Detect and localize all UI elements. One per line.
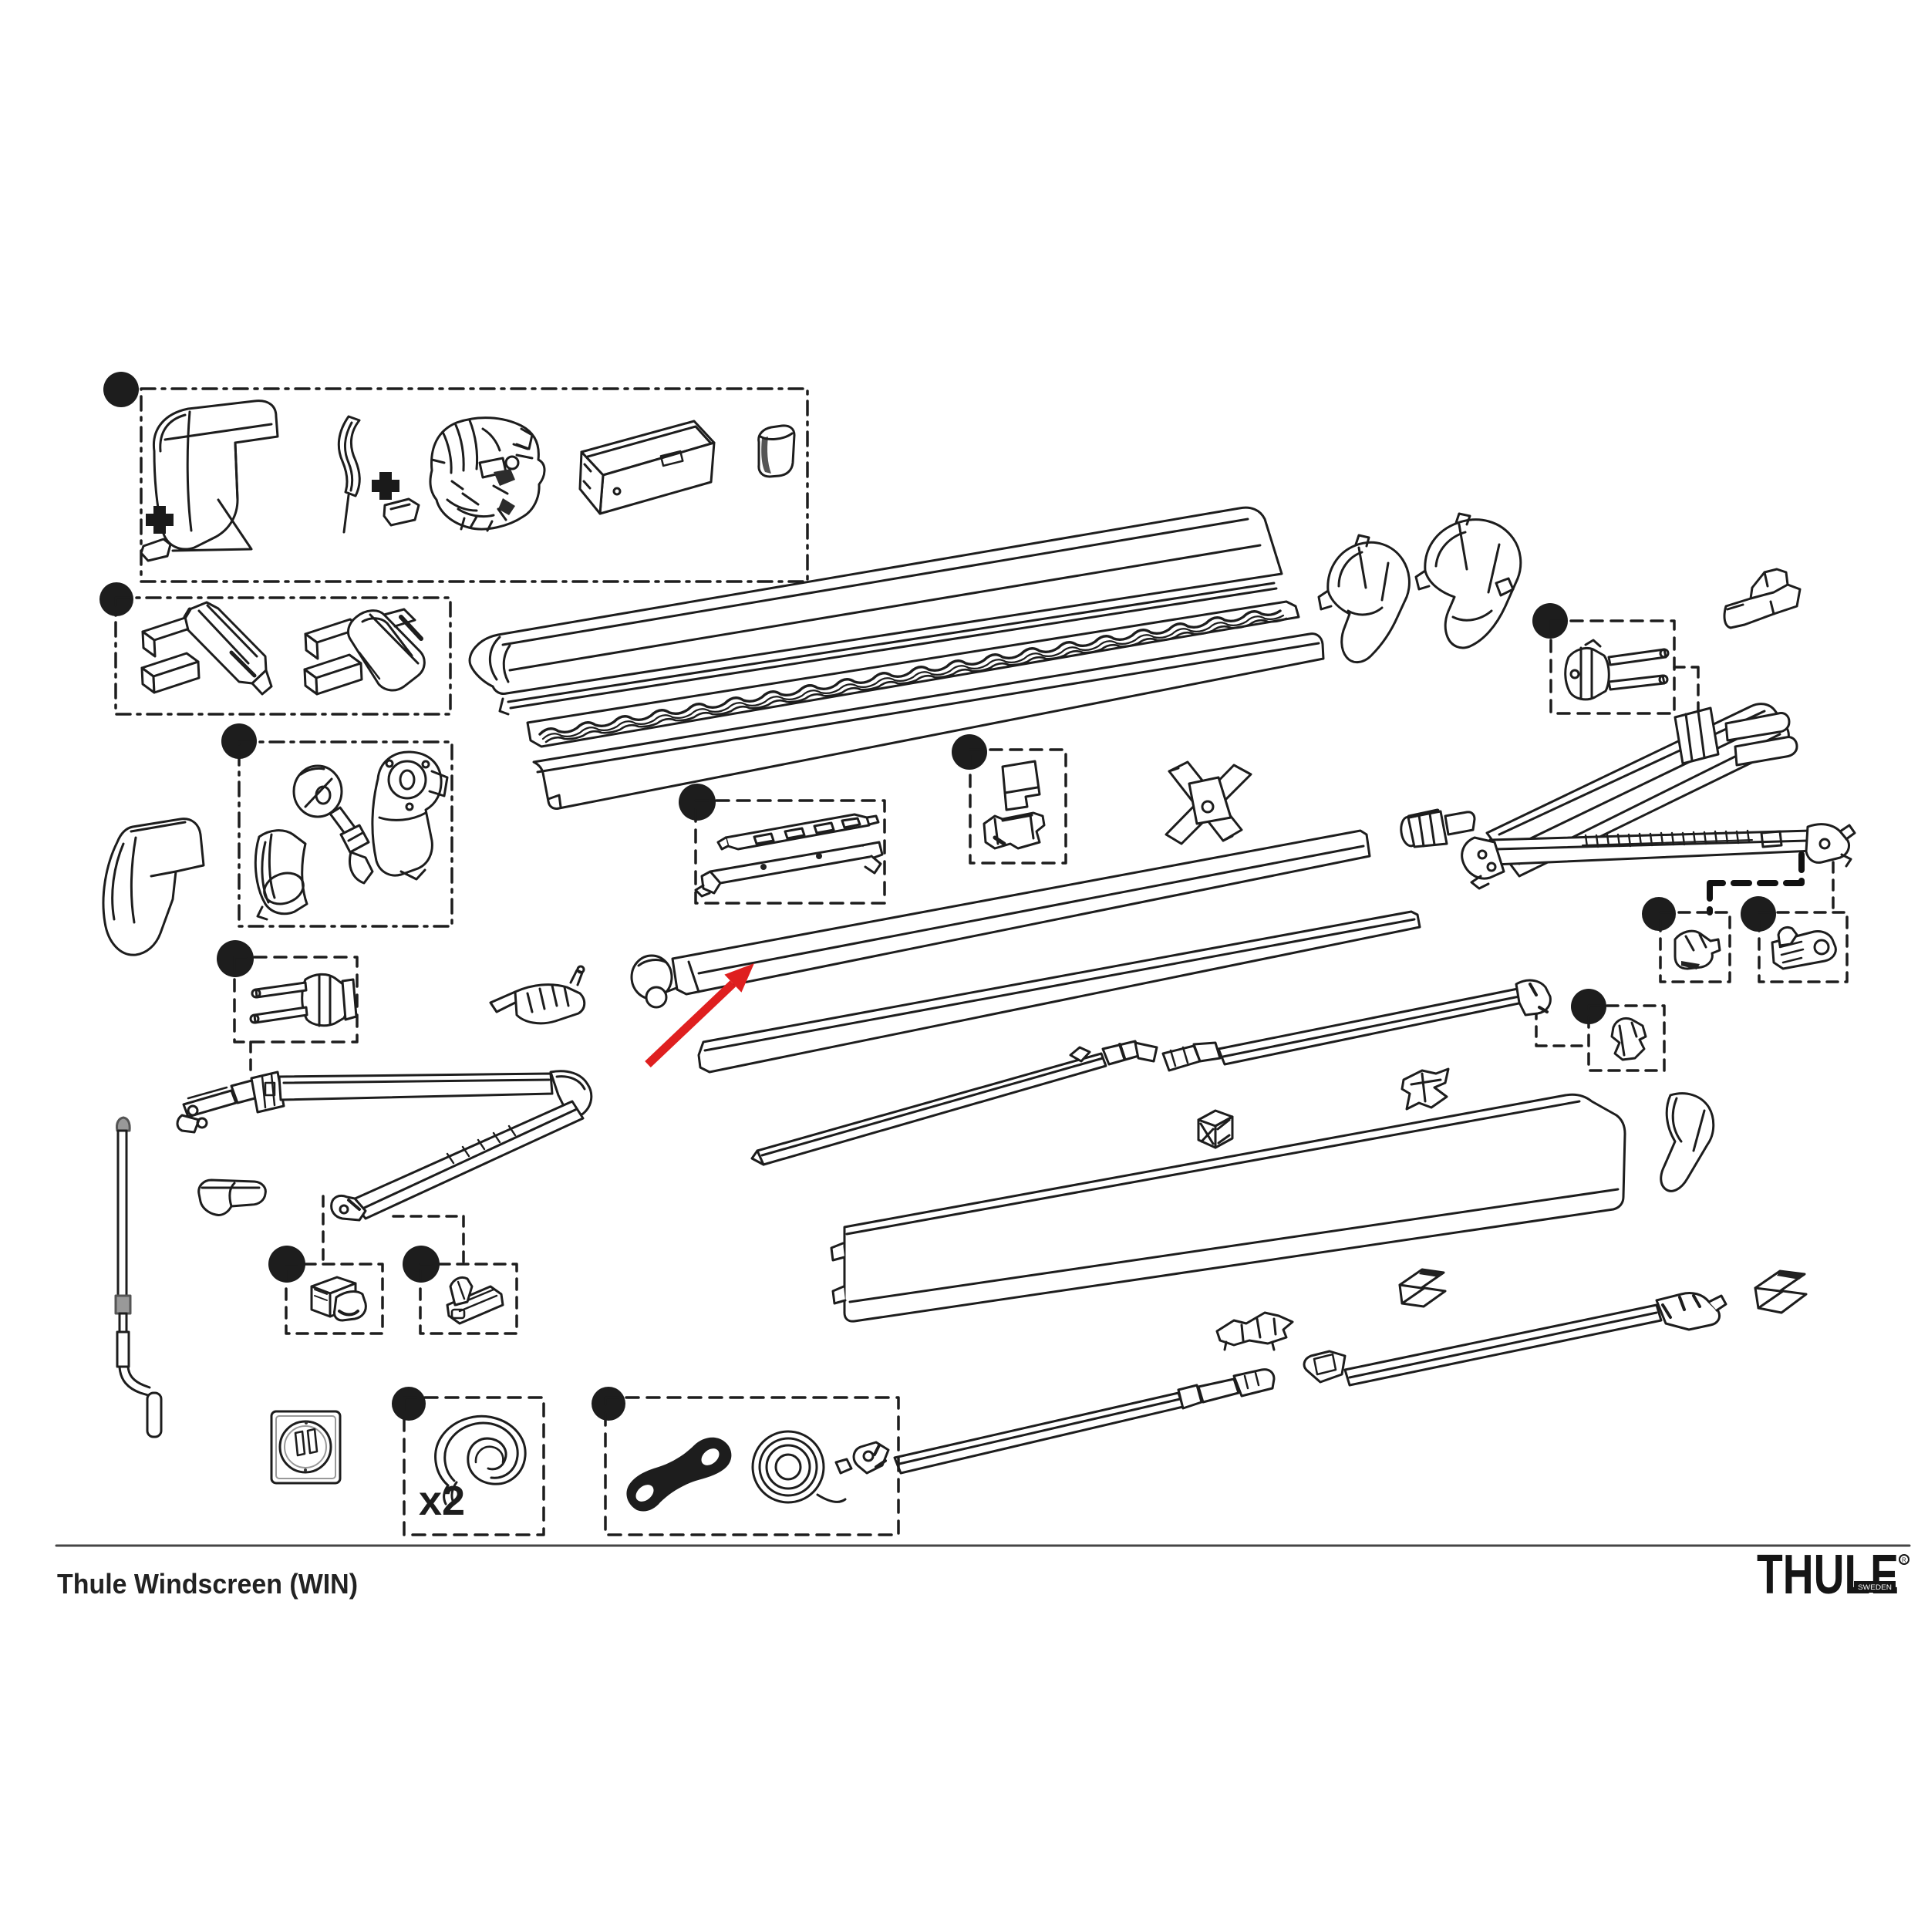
svg-text:SWEDEN: SWEDEN: [1858, 1583, 1892, 1591]
svg-text:R: R: [1902, 1557, 1906, 1564]
svg-text:x2: x2: [419, 1478, 465, 1524]
svg-text:THULE: THULE: [1757, 1544, 1899, 1606]
svg-text:Thule Windscreen (WIN): Thule Windscreen (WIN): [57, 1568, 358, 1600]
